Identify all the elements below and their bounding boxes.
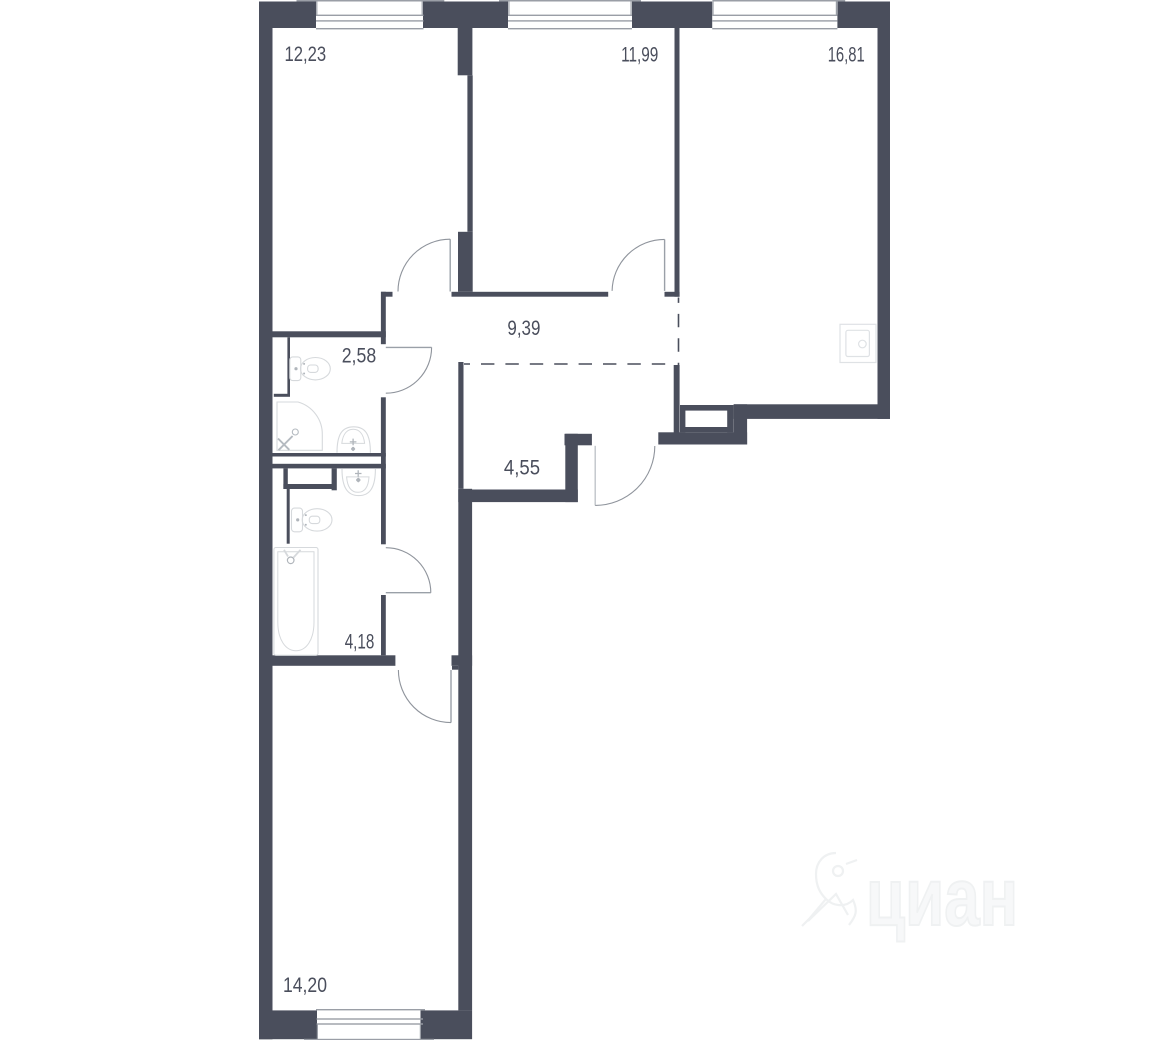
svg-text:11,99: 11,99 (621, 43, 658, 66)
svg-text:9,39: 9,39 (507, 317, 540, 340)
svg-text:16,81: 16,81 (828, 44, 865, 67)
svg-text:циан: циан (866, 852, 1018, 943)
svg-text:14,20: 14,20 (283, 974, 327, 997)
svg-text:12,23: 12,23 (285, 43, 327, 66)
svg-text:4,55: 4,55 (504, 456, 540, 479)
svg-text:4,18: 4,18 (345, 630, 375, 653)
svg-text:2,58: 2,58 (342, 345, 377, 368)
